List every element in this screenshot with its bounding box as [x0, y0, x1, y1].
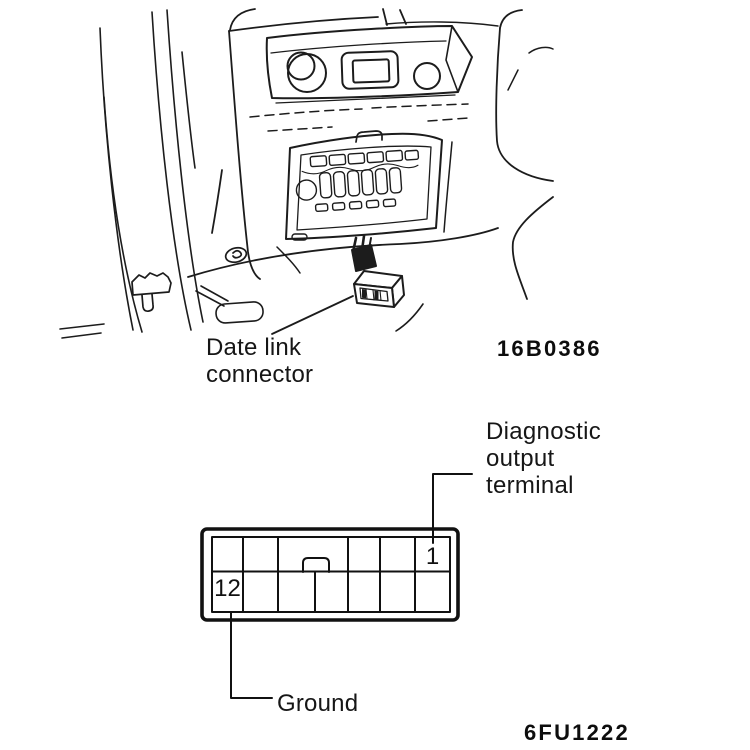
pillar-lines	[100, 10, 203, 332]
ground-callout: Ground	[277, 690, 358, 717]
manual-page: Date link connector 16B0386 Diagnostic o…	[0, 0, 750, 750]
pin12-leader-line	[231, 613, 272, 698]
data-link-connector-sketch	[272, 236, 423, 334]
figure-code-bottom: 6FU1222	[524, 720, 630, 746]
fuse-box-sketch	[286, 131, 452, 240]
switch-panel-sketch	[267, 26, 472, 103]
knob-icon	[288, 54, 326, 92]
round-switch-icon	[414, 63, 440, 89]
fuse-cluster	[294, 149, 422, 213]
pin-1-number: 1	[415, 543, 450, 571]
door-clip-sketch	[132, 246, 248, 311]
pin-12-number: 12	[211, 575, 244, 603]
switch-bezel-icon	[341, 51, 398, 89]
trim-seams	[250, 104, 468, 131]
kick-panel-details	[60, 286, 264, 338]
data-link-connector-callout: Date link connector	[206, 334, 313, 388]
figure-code-top: 16B0386	[497, 336, 602, 362]
connector-key-notch	[303, 558, 329, 572]
diagnostic-output-terminal-callout: Diagnostic output terminal	[486, 418, 601, 499]
switch-button-icon	[353, 59, 390, 82]
callout-leader-line	[272, 296, 353, 334]
vehicle-dash-illustration	[0, 0, 750, 750]
pin1-leader-line	[433, 474, 472, 543]
knob-top-icon	[288, 53, 315, 80]
